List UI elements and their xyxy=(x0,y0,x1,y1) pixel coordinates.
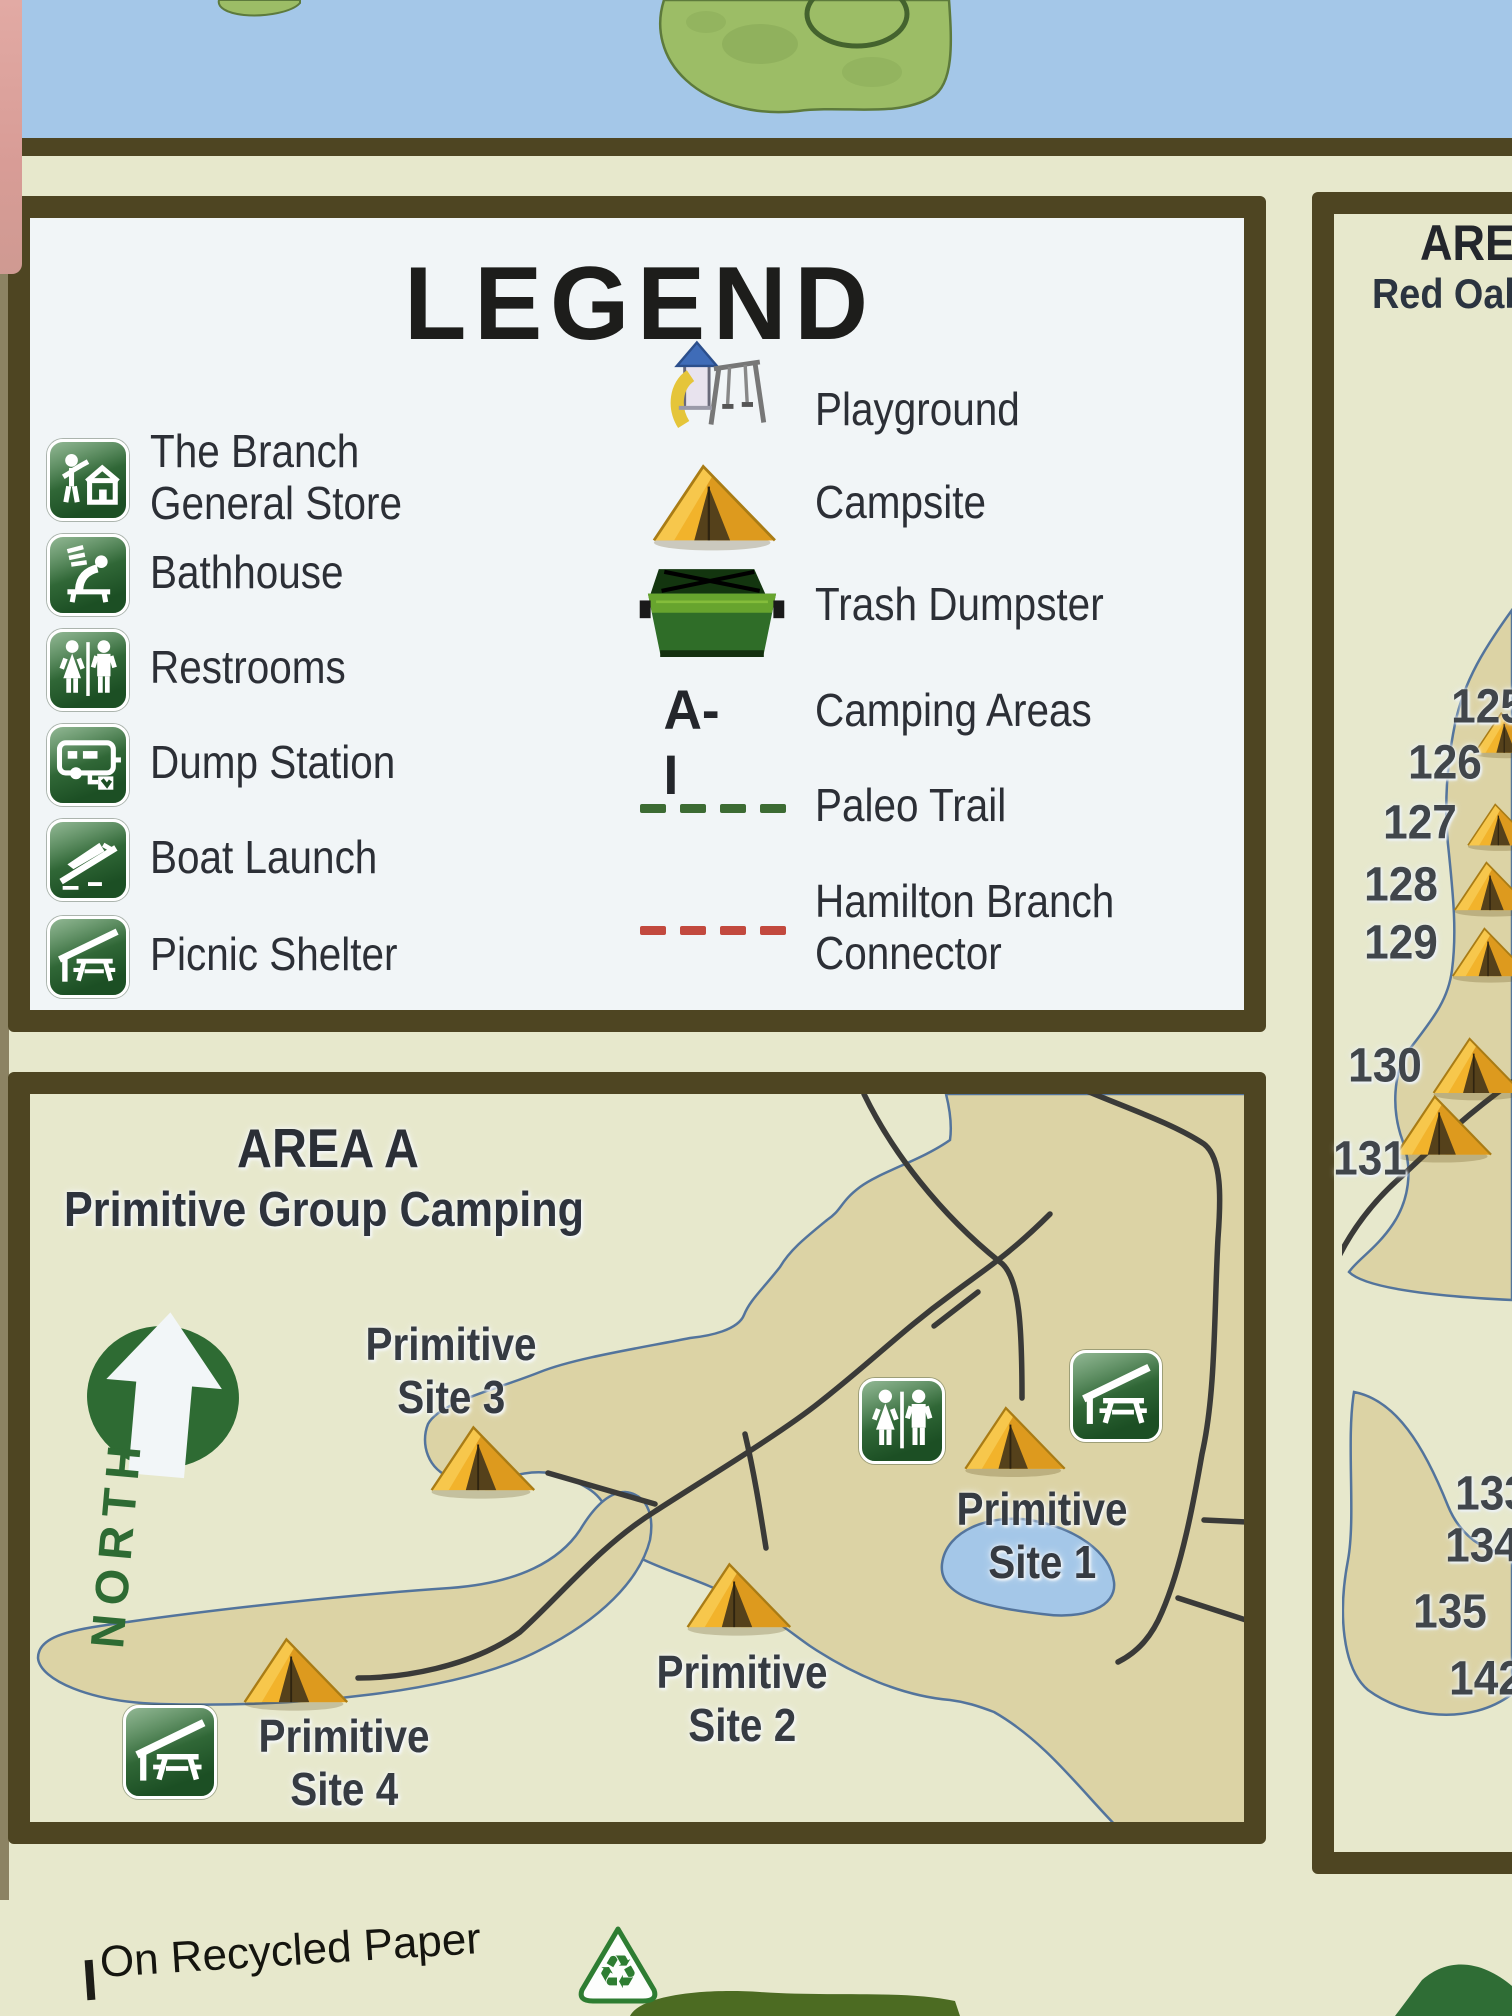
campsite-number: 127 xyxy=(1383,796,1457,851)
tent-icon xyxy=(1447,920,1512,985)
tent-icon xyxy=(1449,854,1512,919)
campsite-icon xyxy=(645,453,779,554)
campsite-number: 133 xyxy=(1455,1467,1512,1522)
legend-item-label: Trash Dumpster xyxy=(815,578,1143,630)
campsite-number: 130 xyxy=(1348,1039,1422,1094)
trash-dumpster-icon xyxy=(637,555,787,665)
playground-icon xyxy=(646,322,778,444)
park-map-photo: NORTH LEGEND The BranchGeneral Store Bat… xyxy=(0,0,1512,2016)
tent-icon xyxy=(237,1628,351,1714)
right-panel-title: AREA xyxy=(1420,214,1512,272)
footer-foliage-blob xyxy=(630,1991,960,2016)
legend-item-label: Campsite xyxy=(815,476,1009,528)
tent-icon xyxy=(680,1553,794,1639)
site-label: PrimitiveSite 4 xyxy=(247,1710,441,1816)
bathhouse-icon xyxy=(47,534,129,616)
campsite-number: 134 xyxy=(1445,1519,1512,1574)
tent-icon xyxy=(424,1416,538,1502)
campsite-number: 128 xyxy=(1364,858,1438,913)
legend-item-label: Playground xyxy=(815,383,1048,435)
campsite-number: 125 xyxy=(1451,680,1512,735)
finger-edge xyxy=(0,0,22,274)
camping-areas-symbol: A-I xyxy=(663,677,719,807)
boat-launch-icon xyxy=(47,819,129,901)
site-label: PrimitiveSite 3 xyxy=(354,1318,548,1424)
tent-icon xyxy=(1463,797,1512,853)
legend-item-label: Dump Station xyxy=(150,736,429,788)
hamilton-branch-dash xyxy=(640,926,786,935)
footer-corner-blob xyxy=(1395,1965,1512,2016)
legend-item-label: Paleo Trail xyxy=(815,779,1032,831)
campsite-number: 129 xyxy=(1364,916,1438,971)
paleo-trail-dash xyxy=(640,804,786,813)
legend-item-label: Boat Launch xyxy=(150,831,408,883)
recycle-icon: ♻ xyxy=(572,1922,664,2012)
legend-item-label: Bathhouse xyxy=(150,546,370,598)
area-a-subtitle: Primitive Group Camping xyxy=(29,1184,620,1237)
campsite-number: 131 xyxy=(1333,1132,1407,1187)
area-a-title: AREA A xyxy=(225,1122,432,1175)
site-label: PrimitiveSite 2 xyxy=(645,1646,839,1752)
restrooms-icon xyxy=(859,1378,945,1464)
legend-item-label: Camping Areas xyxy=(815,684,1130,736)
legend-item-label: Restrooms xyxy=(150,641,372,693)
campsite-number: 135 xyxy=(1413,1585,1487,1640)
dump-station-icon xyxy=(47,724,129,806)
picnic-shelter-icon xyxy=(123,1705,217,1799)
legend-item-label: Picnic Shelter xyxy=(150,928,431,980)
general-store-icon xyxy=(47,439,129,521)
right-panel-subtitle: Red Oak xyxy=(1372,270,1512,318)
tent-icon xyxy=(958,1397,1068,1480)
legend-item-label: Hamilton BranchConnector xyxy=(815,875,1155,979)
top-islands xyxy=(219,0,951,112)
legend-item-label: The BranchGeneral Store xyxy=(150,425,436,529)
picnic-shelter-icon xyxy=(1070,1350,1162,1442)
restrooms-icon xyxy=(47,629,129,711)
campsite-number: 142 xyxy=(1449,1652,1512,1707)
picnic-shelter-icon xyxy=(47,916,129,998)
svg-text:♻: ♻ xyxy=(597,1945,638,1999)
legend-title: LEGEND xyxy=(317,245,964,364)
site-label: PrimitiveSite 1 xyxy=(945,1483,1139,1589)
campsite-number: 126 xyxy=(1408,736,1482,791)
